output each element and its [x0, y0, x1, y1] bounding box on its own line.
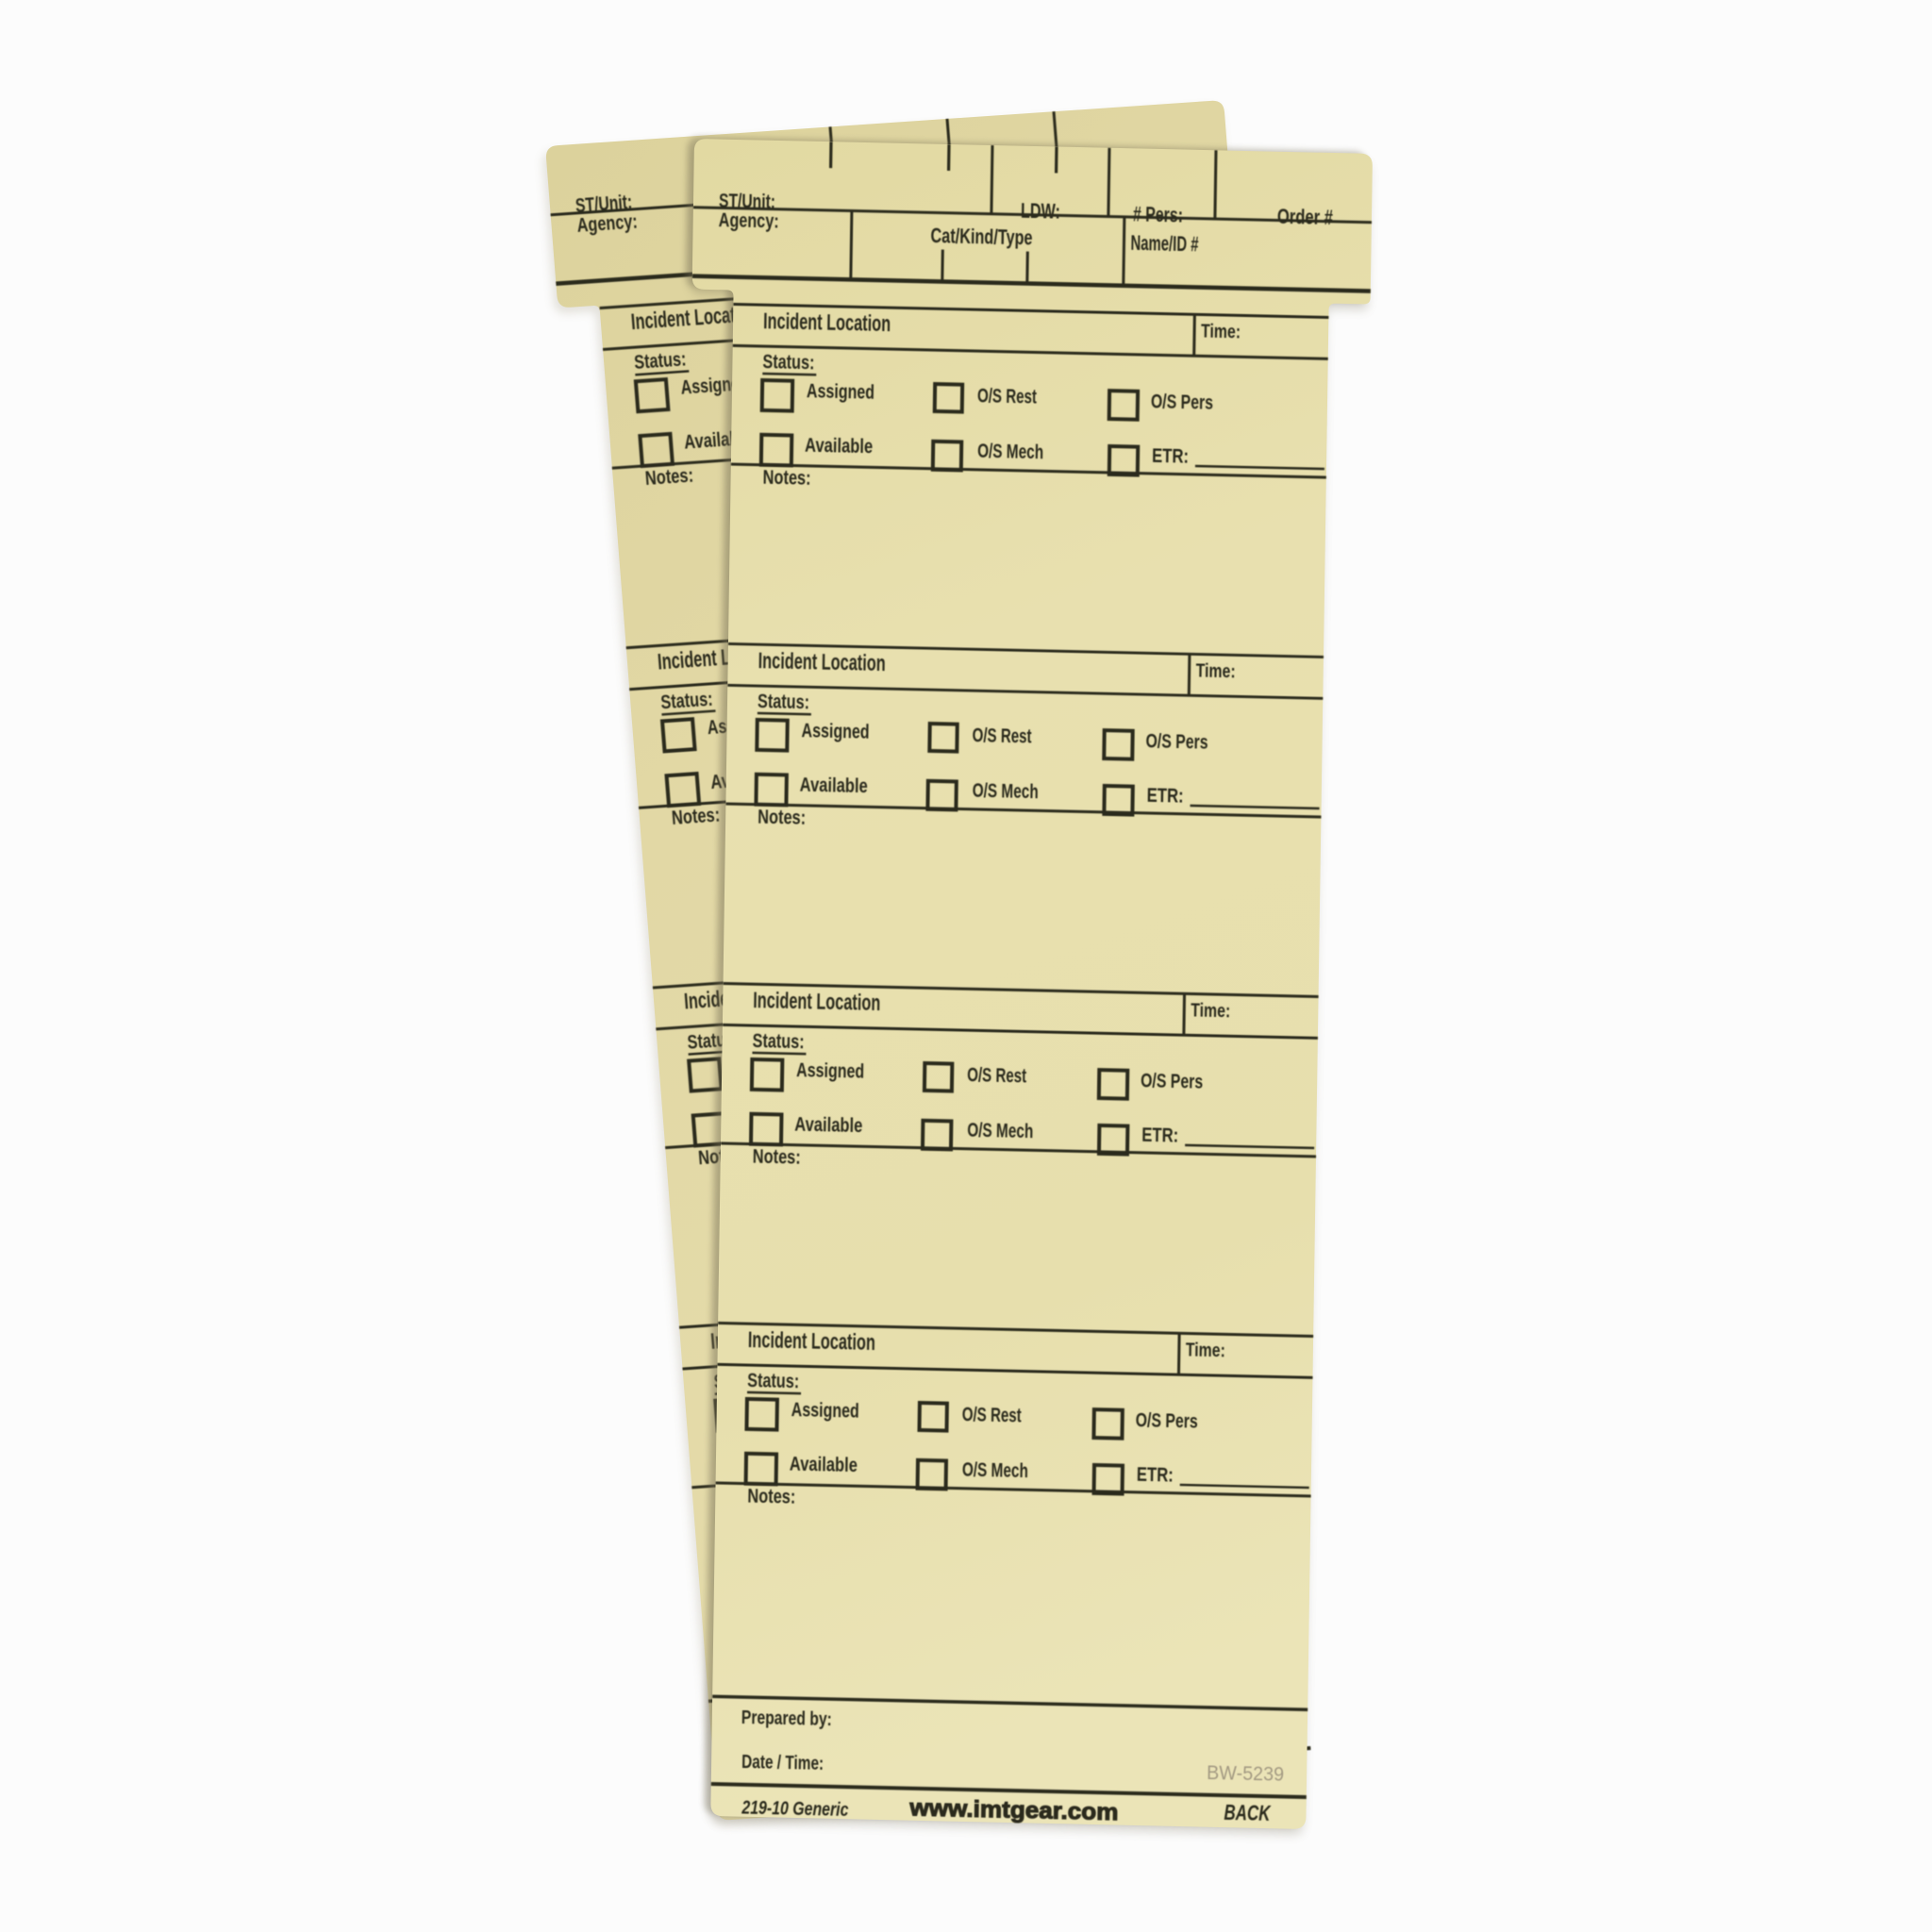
svg-text:Name/ID #: Name/ID # — [1130, 231, 1198, 257]
svg-text:BACK: BACK — [1224, 1800, 1271, 1825]
svg-text:O/S Rest: O/S Rest — [977, 385, 1037, 408]
svg-text:Status:: Status: — [633, 349, 687, 375]
svg-text:Time:: Time: — [1191, 1000, 1230, 1022]
svg-text:O/S Pers: O/S Pers — [1145, 730, 1207, 753]
svg-text:Incident Location: Incident Location — [758, 648, 885, 676]
svg-text:Notes:: Notes: — [762, 467, 810, 490]
svg-text:Available: Available — [805, 435, 873, 458]
svg-text:Cat/Kind/Type: Cat/Kind/Type — [930, 224, 1032, 249]
svg-text:Incident Location: Incident Location — [748, 1327, 875, 1356]
svg-text:Incident Location: Incident Location — [763, 308, 891, 337]
svg-text:Time:: Time: — [1201, 321, 1241, 342]
svg-text:O/S Mech: O/S Mech — [977, 441, 1043, 464]
svg-text:# Pers:: # Pers: — [1133, 202, 1183, 226]
svg-text:Available: Available — [790, 1454, 858, 1477]
svg-text:Incident Location: Incident Location — [753, 988, 880, 1016]
svg-text:219-10 Generic: 219-10 Generic — [741, 1798, 848, 1821]
svg-text:O/S Mech: O/S Mech — [962, 1459, 1028, 1483]
svg-text:Available: Available — [794, 1114, 862, 1138]
svg-text:Assigned: Assigned — [791, 1399, 859, 1423]
svg-text:Prepared by:: Prepared by: — [741, 1707, 832, 1730]
svg-text:ETR:: ETR: — [1141, 1124, 1178, 1147]
svg-text:O/S Pers: O/S Pers — [1151, 391, 1213, 413]
svg-text:O/S Pers: O/S Pers — [1141, 1070, 1203, 1092]
svg-text:Status:: Status: — [747, 1370, 799, 1392]
svg-text:Notes:: Notes: — [747, 1486, 795, 1508]
svg-text:Time:: Time: — [1186, 1340, 1225, 1361]
svg-text:Notes:: Notes: — [758, 807, 806, 829]
svg-text:Agency:: Agency: — [576, 211, 639, 237]
svg-text:Status:: Status: — [660, 689, 714, 714]
svg-text:Notes:: Notes: — [644, 464, 694, 489]
svg-text:Assigned: Assigned — [801, 720, 869, 743]
svg-text:LDW:: LDW: — [1021, 199, 1060, 224]
svg-text:O/S Rest: O/S Rest — [972, 724, 1031, 747]
svg-text:Order #: Order # — [1277, 205, 1333, 229]
svg-text:Agency:: Agency: — [719, 209, 779, 232]
svg-text:Available: Available — [800, 774, 868, 798]
svg-text:Time:: Time: — [1196, 660, 1236, 682]
svg-text:ETR:: ETR: — [1147, 785, 1184, 808]
svg-text:Status:: Status: — [752, 1030, 804, 1053]
svg-text:O/S Rest: O/S Rest — [967, 1064, 1026, 1087]
svg-text:Status:: Status: — [758, 691, 809, 713]
svg-text:Notes:: Notes: — [753, 1146, 801, 1169]
svg-text:Assigned: Assigned — [796, 1059, 864, 1083]
svg-text:Status:: Status: — [762, 351, 814, 374]
svg-text:www.imtgear.com: www.imtgear.com — [908, 1795, 1118, 1826]
svg-text:Date / Time:: Date / Time: — [741, 1752, 824, 1774]
svg-text:O/S Rest: O/S Rest — [962, 1404, 1022, 1426]
svg-text:O/S Mech: O/S Mech — [967, 1120, 1033, 1143]
svg-text:Assigned: Assigned — [807, 380, 874, 404]
svg-text:O/S Mech: O/S Mech — [973, 780, 1039, 804]
svg-text:BW-5239: BW-5239 — [1207, 1762, 1284, 1786]
svg-text:ETR:: ETR: — [1137, 1464, 1174, 1487]
svg-text:O/S Pers: O/S Pers — [1136, 1409, 1198, 1432]
svg-text:Notes:: Notes: — [671, 805, 721, 829]
svg-text:ETR:: ETR: — [1152, 445, 1189, 468]
